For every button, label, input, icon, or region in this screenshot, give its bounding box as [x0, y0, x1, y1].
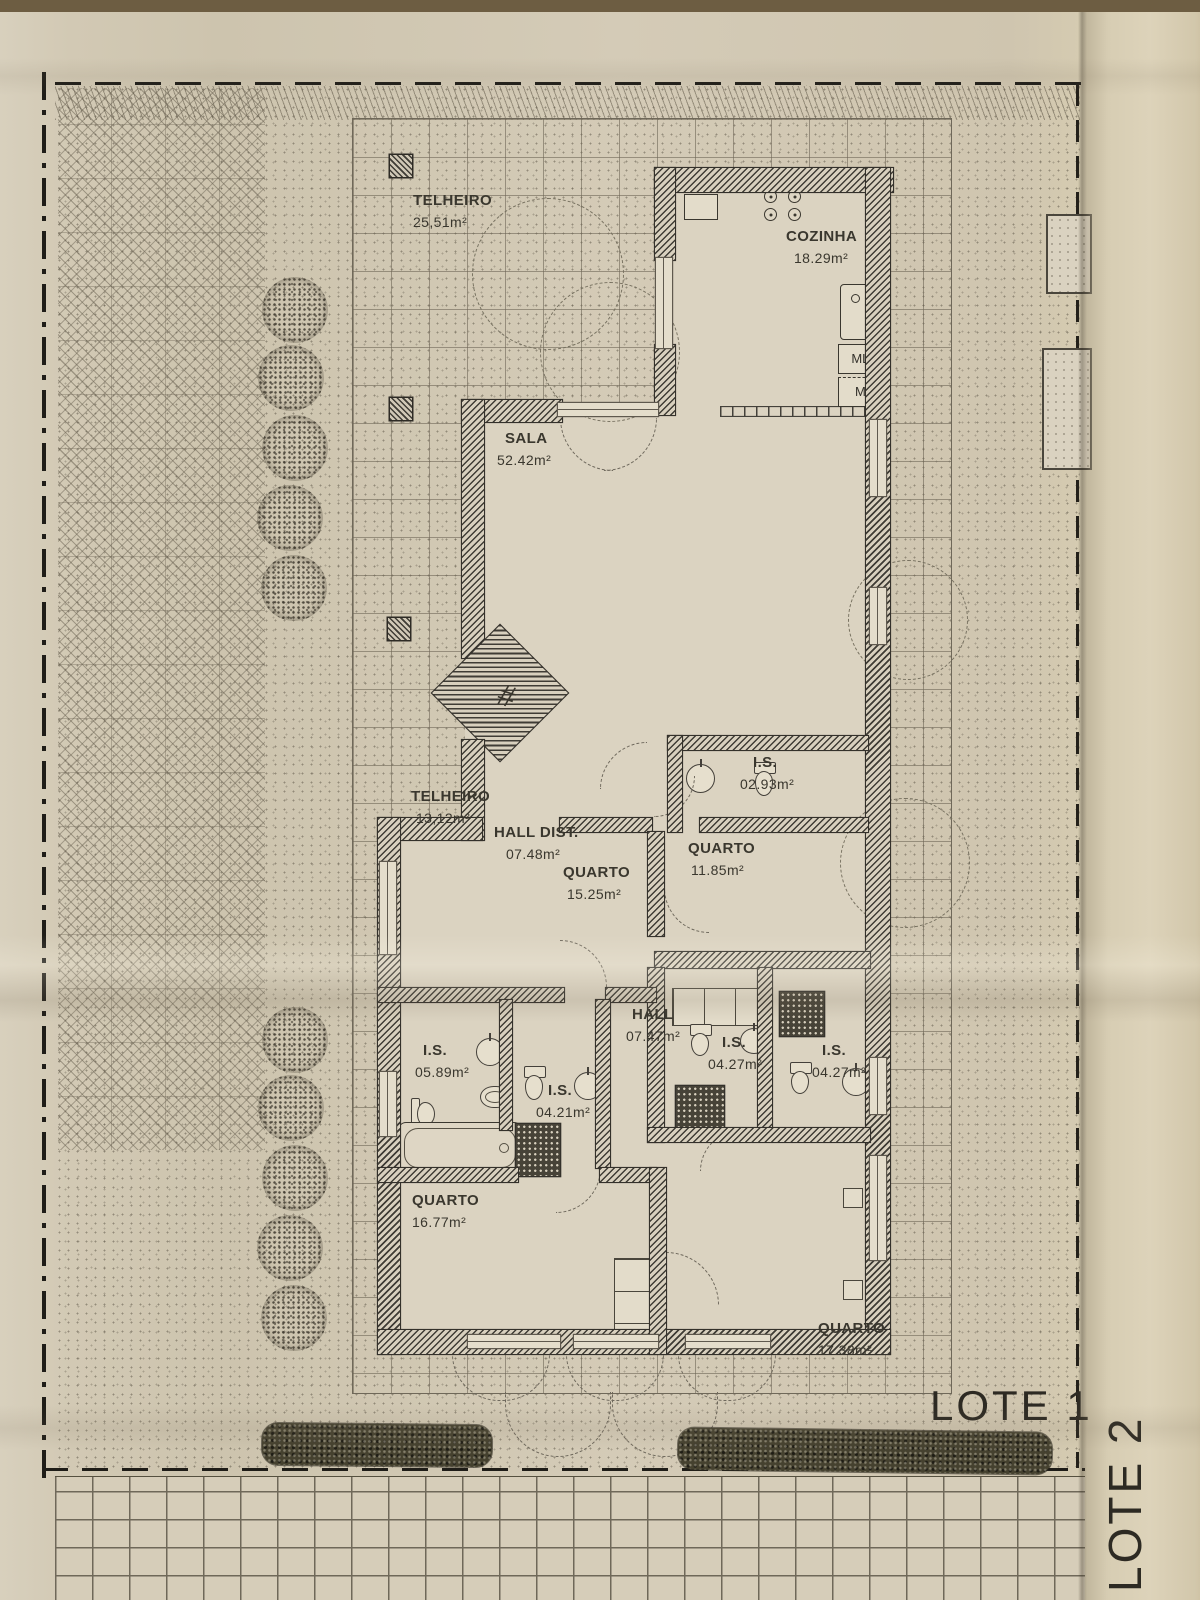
lot-label-1: LOTE 1 [930, 1382, 1093, 1430]
window-symbol [380, 862, 396, 954]
window-symbol [870, 420, 886, 496]
room-name: QUARTO [688, 838, 755, 860]
stove-burner-icon [788, 208, 801, 221]
room-name: QUARTO [563, 862, 630, 884]
window-symbol [574, 1335, 658, 1348]
room-name: QUARTO [412, 1190, 479, 1212]
cabinet-row [720, 406, 866, 417]
room-name: I.S. [415, 1040, 469, 1062]
boundary-line-left [42, 72, 46, 1478]
room-area: 16.77m² [412, 1212, 479, 1232]
sink-drain-icon [851, 294, 860, 303]
room-name: HALL DIST. [494, 822, 579, 844]
room-area: 15.25m² [563, 884, 630, 904]
room-name: TELHEIRO [411, 786, 490, 808]
room-label-telheiro-2: TELHEIRO 13,12m² [411, 786, 490, 828]
wall-segment [700, 818, 868, 832]
room-label-telheiro-1: TELHEIRO 25,51m² [413, 190, 492, 232]
room-area: 02.93m² [740, 774, 794, 794]
wall-segment [668, 736, 868, 750]
room-area: 04.27m² [812, 1062, 866, 1082]
toilet-icon [788, 1062, 812, 1094]
room-area: 07.47m² [626, 1026, 680, 1046]
tree-symbol [262, 1007, 328, 1073]
column-post [390, 398, 412, 420]
tree-symbol [257, 485, 323, 551]
room-label-quarto-4: QUARTO 17.38m² [818, 1318, 885, 1360]
room-label-is-4: I.S. 04.27m² [708, 1032, 762, 1074]
shower-icon [780, 992, 824, 1036]
room-area: 05.89m² [415, 1062, 469, 1082]
window-symbol [380, 1072, 396, 1136]
window-symbol [468, 1335, 560, 1348]
wall-segment [650, 1168, 666, 1354]
room-label-quarto-1: QUARTO 15.25m² [563, 862, 630, 904]
tree-symbol [258, 345, 324, 411]
wardrobe-square [843, 1188, 863, 1208]
window-symbol [870, 588, 886, 644]
wardrobe-square [843, 1280, 863, 1300]
room-label-hall: HALL 07.47m² [626, 1004, 680, 1046]
wall-segment [600, 1168, 656, 1182]
window-symbol [870, 1058, 886, 1114]
room-label-sala: SALA 52.42m² [497, 428, 551, 470]
stove-burner-icon [764, 208, 777, 221]
room-name: I.S. [536, 1080, 590, 1102]
room-label-quarto-2: QUARTO 11.85m² [688, 838, 755, 880]
window-symbol [870, 1156, 886, 1260]
room-label-hall-dist: HALL DIST. 07.48m² [494, 822, 579, 864]
room-name: I.S. [740, 752, 794, 774]
hedge-symbol [262, 1423, 492, 1467]
wall-segment [606, 988, 656, 1002]
oven-icon [684, 194, 718, 220]
shower-icon [516, 1124, 560, 1176]
room-area: 18.29m² [786, 248, 857, 268]
tree-symbol [262, 415, 328, 481]
room-area: 07.48m² [494, 844, 579, 864]
window-symbol [558, 403, 658, 416]
room-area: 04.27m² [708, 1054, 762, 1074]
wall-segment [500, 1000, 512, 1130]
room-name: TELHEIRO [413, 190, 492, 212]
wall-segment [655, 168, 893, 192]
room-name: COZINHA [786, 226, 857, 248]
tree-symbol [261, 555, 327, 621]
wall-segment [655, 168, 675, 260]
room-label-is-5: I.S. 04.27m² [812, 1040, 866, 1082]
room-label-is-2: I.S. 05.89m² [415, 1040, 469, 1082]
room-area: 11.85m² [688, 860, 755, 880]
wall-segment [378, 988, 564, 1002]
room-name: HALL [626, 1004, 680, 1026]
column-post [390, 155, 412, 177]
tree-symbol [262, 1145, 328, 1211]
window-symbol [656, 258, 672, 348]
tree-symbol [262, 277, 328, 343]
wall-segment [655, 345, 675, 415]
wall-segment [648, 832, 664, 936]
room-area: 52.42m² [497, 450, 551, 470]
room-label-is-3: I.S. 04.21m² [536, 1080, 590, 1122]
room-label-is-1: I.S. 02.93m² [740, 752, 794, 794]
room-name: I.S. [708, 1032, 762, 1054]
wall-segment [668, 736, 682, 832]
room-name: SALA [497, 428, 551, 450]
tree-symbol [258, 1075, 324, 1141]
wall-segment [648, 1128, 870, 1142]
shower-icon [676, 1086, 724, 1132]
room-area: 17.38m² [818, 1340, 885, 1360]
boundary-line-top [55, 82, 1085, 85]
wall-segment [462, 400, 484, 658]
wall-segment [378, 1168, 518, 1182]
tree-symbol [261, 1285, 327, 1351]
street-pavement [55, 1476, 1085, 1600]
room-area: 13,12m² [411, 808, 490, 828]
room-area: 04.21m² [536, 1102, 590, 1122]
floor-plan-photo: MLL Mlr [0, 0, 1200, 1600]
lot-label-2: LOTE 2 [1098, 1415, 1152, 1592]
wall-segment [596, 1000, 610, 1168]
room-name: I.S. [812, 1040, 866, 1062]
tree-symbol [257, 1215, 323, 1281]
closet [672, 988, 766, 1026]
hedge-symbol [678, 1427, 1053, 1474]
photo-top-edge [0, 0, 1200, 12]
room-name: QUARTO [818, 1318, 885, 1340]
column-post [388, 618, 410, 640]
room-label-quarto-3: QUARTO 16.77m² [412, 1190, 479, 1232]
window-symbol [686, 1335, 770, 1348]
paper-fold [1078, 0, 1200, 1600]
wall-segment [655, 952, 870, 968]
room-area: 25,51m² [413, 212, 492, 232]
room-label-cozinha: COZINHA 18.29m² [786, 226, 857, 268]
paving-basketweave [58, 88, 265, 1150]
